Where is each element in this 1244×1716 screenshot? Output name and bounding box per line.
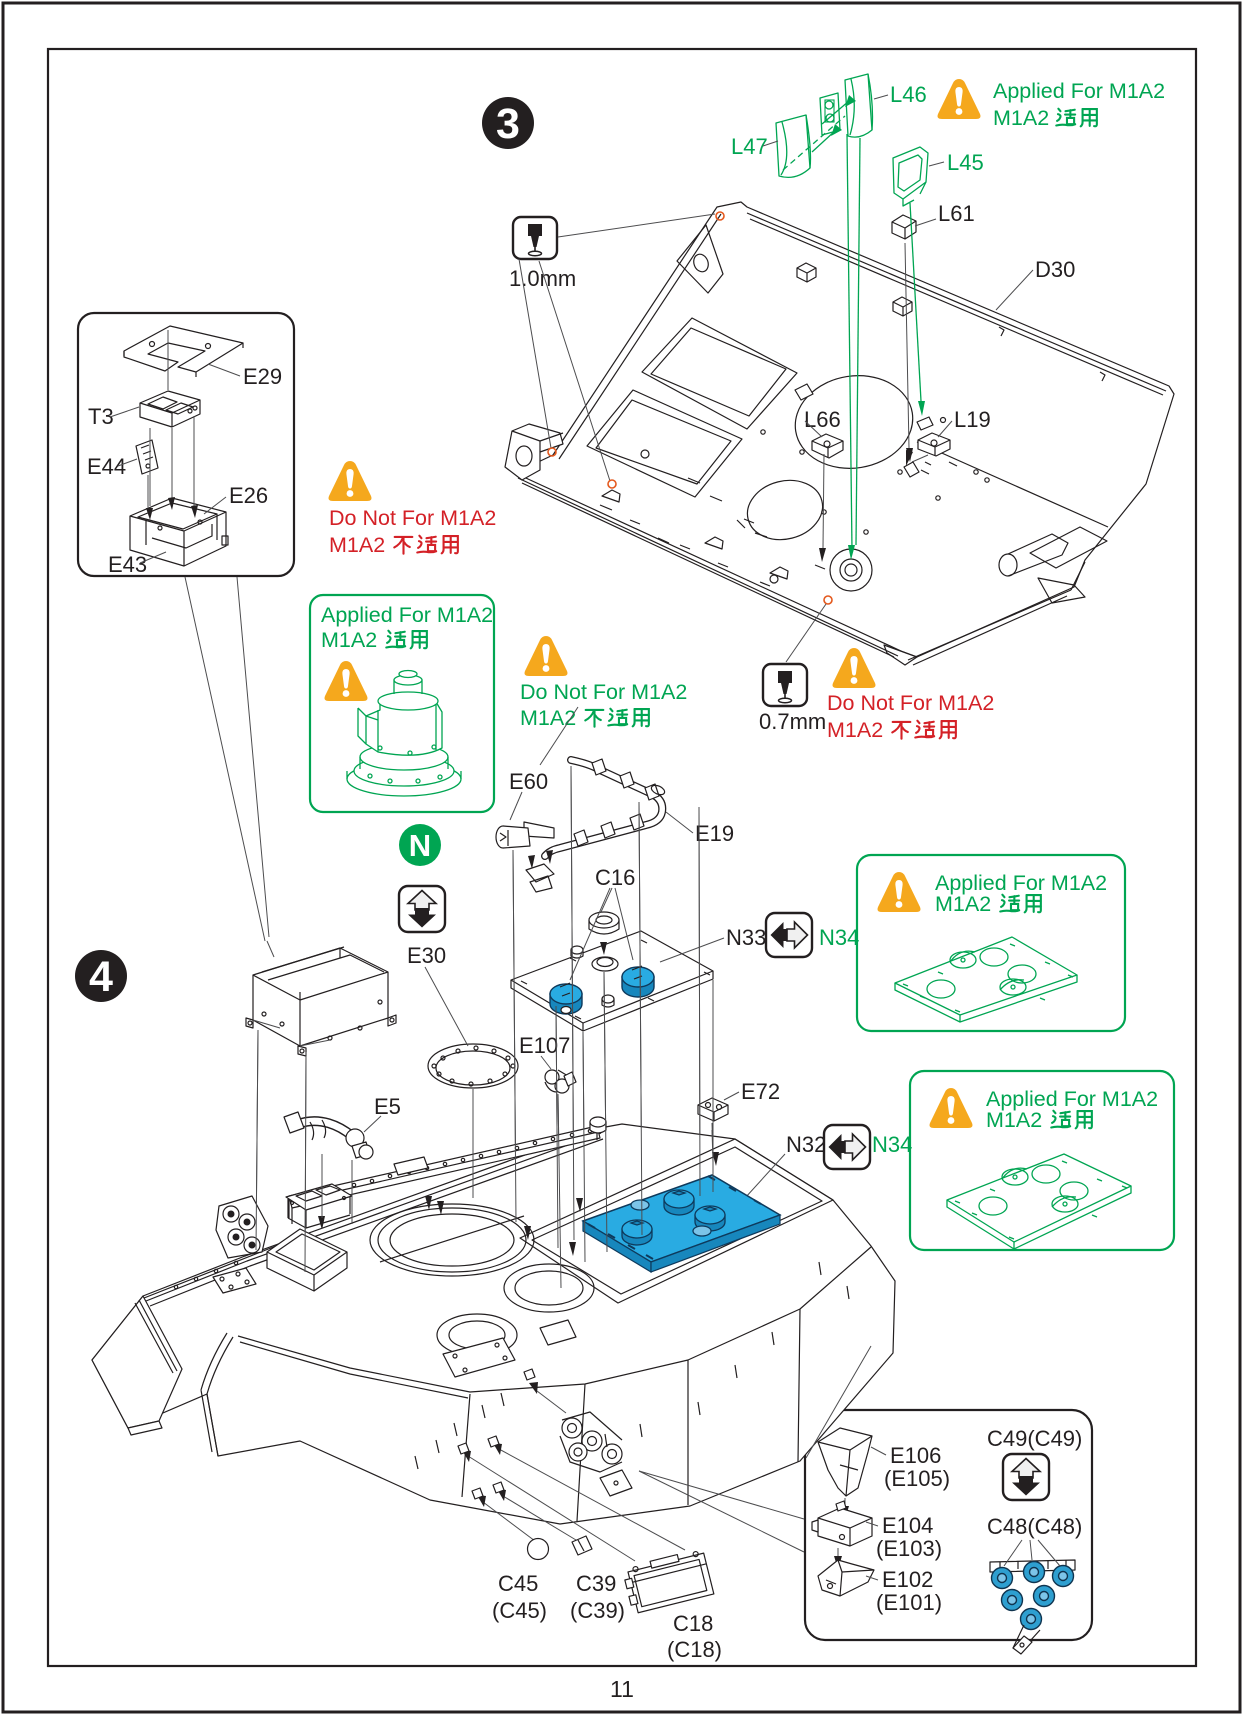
svg-text:M1A2: M1A2 xyxy=(520,706,576,730)
svg-text:L45: L45 xyxy=(947,150,984,175)
svg-text:Do Not For M1A2: Do Not For M1A2 xyxy=(827,691,994,715)
svg-text:E29: E29 xyxy=(243,364,282,389)
svg-text:Do Not For M1A2: Do Not For M1A2 xyxy=(329,506,496,530)
svg-text:(E101): (E101) xyxy=(876,1590,942,1615)
svg-text:C39: C39 xyxy=(576,1571,616,1596)
svg-text:E106: E106 xyxy=(890,1443,941,1468)
svg-text:3: 3 xyxy=(496,100,520,148)
svg-text:M1A2: M1A2 xyxy=(321,628,377,652)
svg-text:E102: E102 xyxy=(882,1567,933,1592)
svg-text:0.7mm: 0.7mm xyxy=(759,709,826,734)
svg-text:E60: E60 xyxy=(509,769,548,794)
svg-text:E30: E30 xyxy=(407,943,446,968)
svg-text:(C45): (C45) xyxy=(492,1598,547,1623)
svg-text:D30: D30 xyxy=(1035,257,1075,282)
svg-text:L66: L66 xyxy=(804,407,841,432)
svg-text:(E103): (E103) xyxy=(876,1536,942,1561)
svg-text:L46: L46 xyxy=(890,82,927,107)
svg-text:M1A2: M1A2 xyxy=(993,106,1049,130)
svg-text:M1A2: M1A2 xyxy=(935,892,991,916)
svg-text:(C39): (C39) xyxy=(570,1598,625,1623)
svg-text:Applied For M1A2: Applied For M1A2 xyxy=(993,79,1165,103)
svg-text:N33: N33 xyxy=(726,925,766,950)
svg-text:M1A2: M1A2 xyxy=(329,533,385,557)
svg-text:N32: N32 xyxy=(786,1132,826,1157)
svg-text:T3: T3 xyxy=(88,404,114,429)
svg-text:C16: C16 xyxy=(595,865,635,890)
svg-text:N: N xyxy=(409,828,431,863)
svg-text:E19: E19 xyxy=(695,821,734,846)
svg-text:L19: L19 xyxy=(954,407,991,432)
svg-text:E44: E44 xyxy=(87,454,126,479)
svg-text:C48(C48): C48(C48) xyxy=(987,1514,1082,1539)
svg-text:E104: E104 xyxy=(882,1513,933,1538)
svg-text:Applied For M1A2: Applied For M1A2 xyxy=(321,603,493,627)
svg-text:E43: E43 xyxy=(108,552,147,577)
svg-text:M1A2: M1A2 xyxy=(827,718,883,742)
svg-text:M1A2: M1A2 xyxy=(986,1108,1042,1132)
svg-text:Do Not For M1A2: Do Not For M1A2 xyxy=(520,680,687,704)
svg-text:N34: N34 xyxy=(819,925,859,950)
svg-text:N34: N34 xyxy=(872,1132,912,1157)
svg-text:C49(C49): C49(C49) xyxy=(987,1426,1082,1451)
svg-text:C45: C45 xyxy=(498,1571,538,1596)
svg-text:C18: C18 xyxy=(673,1611,713,1636)
svg-text:L61: L61 xyxy=(938,201,975,226)
svg-text:E5: E5 xyxy=(374,1094,401,1119)
svg-text:L47: L47 xyxy=(731,134,768,159)
svg-text:(C18): (C18) xyxy=(667,1637,722,1662)
svg-text:4: 4 xyxy=(89,953,113,1001)
svg-text:11: 11 xyxy=(610,1676,634,1702)
svg-text:E107: E107 xyxy=(519,1033,570,1058)
svg-text:E72: E72 xyxy=(741,1079,780,1104)
svg-text:(E105): (E105) xyxy=(884,1466,950,1491)
svg-text:E26: E26 xyxy=(229,483,268,508)
svg-text:1.0mm: 1.0mm xyxy=(509,266,576,291)
